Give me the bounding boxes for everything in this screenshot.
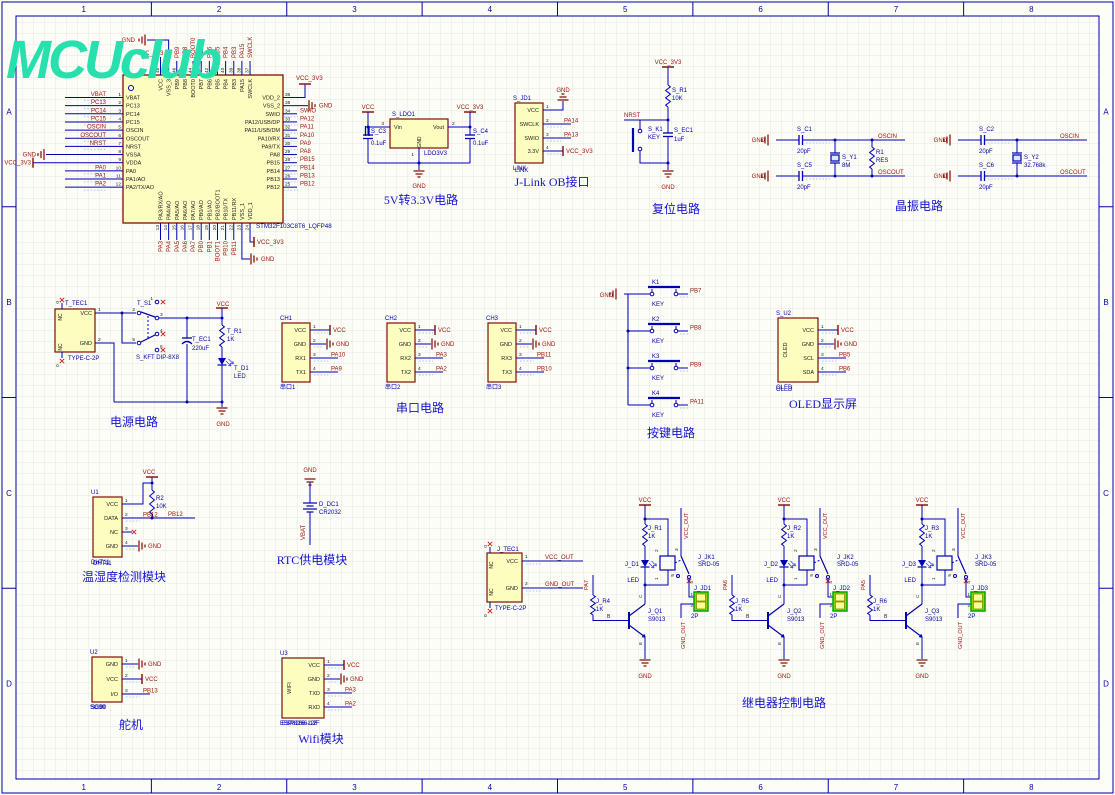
power-label[interactable]: VCC_OUT: [961, 512, 967, 539]
pin-name: RX2: [400, 356, 411, 362]
res-value[interactable]: 1K: [925, 534, 932, 540]
net-label[interactable]: OSCOUT: [80, 133, 106, 139]
relay-value[interactable]: SRD-05: [698, 562, 720, 568]
res-value[interactable]: 1K: [227, 337, 234, 343]
net-label[interactable]: SWCLK: [248, 37, 254, 58]
key-designator[interactable]: K1: [652, 280, 660, 286]
pin-number: 6: [118, 133, 121, 139]
net-label[interactable]: PA10: [331, 353, 346, 359]
pin-number: 39: [228, 67, 234, 73]
ldo-part[interactable]: LDO3V3: [424, 151, 448, 157]
contact-icon: [650, 329, 654, 333]
net-label[interactable]: PA9: [300, 141, 312, 147]
ruler-zone-number: 1: [81, 783, 86, 792]
net-label[interactable]: VBAT: [301, 524, 307, 540]
serial-ch1-part[interactable]: 串口1: [280, 383, 296, 391]
pin-name: PC13: [126, 104, 140, 110]
cap-designator[interactable]: T_EC1: [192, 337, 211, 343]
out-typec-designator[interactable]: J_TEC1: [497, 547, 519, 553]
cap-value[interactable]: 220uF: [192, 346, 209, 352]
connector-pin: [974, 602, 983, 609]
dht-designator[interactable]: U1: [91, 490, 99, 496]
connector-value[interactable]: 2P: [691, 614, 698, 620]
serial-ch1-designator[interactable]: CH1: [280, 316, 293, 322]
connector-value[interactable]: 2P: [968, 614, 975, 620]
pin-number: 24: [245, 225, 251, 231]
key-designator[interactable]: K4: [652, 391, 660, 397]
power-label[interactable]: VCC: [539, 328, 552, 334]
block-title[interactable]: OLED显示屏: [789, 397, 857, 411]
power-label[interactable]: VCC_3V3: [257, 240, 284, 246]
relay-value[interactable]: SRD-05: [975, 562, 997, 568]
pin-number: 14: [163, 225, 169, 231]
net-label[interactable]: PA3: [436, 353, 448, 359]
net-label[interactable]: BOOT1: [215, 240, 221, 261]
contact-icon: [137, 341, 141, 345]
oled-designator[interactable]: S_U2: [776, 311, 792, 317]
net-label[interactable]: PA9: [331, 367, 343, 373]
contact-icon: [674, 329, 678, 333]
power-label[interactable]: GND: [556, 88, 570, 94]
net-label[interactable]: PA2: [95, 182, 107, 188]
net-label[interactable]: PA12: [300, 116, 315, 122]
power-label[interactable]: VCC: [639, 498, 652, 504]
oled-part[interactable]: OLED: [776, 387, 793, 393]
net-label[interactable]: PA2: [436, 367, 448, 373]
res-designator[interactable]: J_R3: [925, 526, 940, 532]
net-label[interactable]: PA6: [723, 580, 729, 590]
pin-number: 20: [212, 225, 218, 231]
net-label[interactable]: PA13: [564, 133, 579, 139]
block-title[interactable]: 晶振电路: [895, 198, 943, 213]
led-value[interactable]: LED: [627, 578, 639, 584]
serial-ch3-designator[interactable]: CH3: [486, 316, 499, 322]
block-title[interactable]: 5V转3.3V电路: [384, 192, 458, 207]
contact-icon: [650, 403, 654, 407]
net-label[interactable]: PA6: [183, 240, 189, 252]
pin-number: 25: [285, 182, 291, 188]
net-label[interactable]: PA3: [159, 240, 165, 252]
pin-name: VCC: [294, 328, 306, 334]
power-label[interactable]: VCC_3V3: [4, 161, 31, 167]
net-label[interactable]: PA3: [345, 688, 357, 694]
serial-ch3-part[interactable]: 串口3: [486, 383, 502, 391]
led-designator[interactable]: J_D2: [764, 562, 779, 568]
power-label[interactable]: VCC: [333, 328, 346, 334]
block-title[interactable]: 按键电路: [647, 425, 695, 440]
power-label[interactable]: VCC: [362, 105, 375, 111]
net-label[interactable]: OSCIN: [878, 134, 897, 140]
res-designator[interactable]: J_R5: [735, 599, 750, 605]
relay-value[interactable]: SRD-05: [837, 562, 859, 568]
led-designator[interactable]: J_D3: [902, 562, 917, 568]
cap-value[interactable]: 20pF: [979, 149, 993, 155]
res-value[interactable]: 10K: [156, 504, 167, 510]
net-label[interactable]: PB12: [168, 512, 183, 518]
cap-value[interactable]: 20pF: [797, 149, 811, 155]
crystal-value[interactable]: 32.768k: [1024, 163, 1046, 169]
power-label[interactable]: GND_OUT: [958, 621, 964, 649]
power-label[interactable]: VCC_OUT: [684, 512, 690, 539]
serial-ch2-designator[interactable]: CH2: [385, 316, 398, 322]
crystal-designator[interactable]: S_Y1: [842, 155, 857, 161]
net-label[interactable]: PA15: [240, 43, 246, 58]
net-label[interactable]: PB10: [224, 240, 230, 255]
pin-name: PA8: [270, 153, 280, 159]
cap-designator[interactable]: S_C6: [979, 163, 995, 169]
net-label[interactable]: NRST: [624, 113, 641, 119]
transistor-value[interactable]: S9013: [648, 617, 666, 623]
pin-name: E: [915, 642, 920, 645]
pin-number: 2: [793, 549, 799, 552]
res-value[interactable]: RES: [876, 158, 888, 164]
pin-name: PA11/USB/DM: [244, 128, 280, 134]
ruler-zone-number: 1: [81, 5, 86, 14]
power-label[interactable]: GND: [844, 342, 858, 348]
net-label[interactable]: PC13: [91, 100, 107, 106]
transistor-designator[interactable]: J_Q3: [925, 609, 940, 615]
net-label[interactable]: PB6: [839, 367, 851, 373]
connector-pin: [974, 594, 983, 601]
block-title[interactable]: 继电器控制电路: [742, 695, 826, 710]
net-label[interactable]: PB5: [839, 353, 851, 359]
power-label[interactable]: VCC: [841, 328, 854, 334]
connector-value[interactable]: 2P: [830, 614, 837, 620]
pin-number: 1: [654, 577, 660, 580]
power-label[interactable]: VCC: [438, 328, 451, 334]
power-label[interactable]: VCC_3V3: [457, 105, 484, 111]
cap-designator[interactable]: S_C2: [979, 127, 995, 133]
net-label[interactable]: PA11: [690, 400, 704, 406]
res-designator[interactable]: S_R1: [672, 88, 688, 94]
net-label[interactable]: OSCIN: [1060, 134, 1079, 140]
power-label[interactable]: GND: [336, 342, 350, 348]
schematic-canvas[interactable]: 1122334455667788AABBCCDDSTM32F103C8T6_LQ…: [0, 0, 1115, 795]
net-label[interactable]: VBAT: [91, 92, 107, 98]
power-label[interactable]: GND: [934, 138, 948, 144]
pin-number: 23: [236, 225, 242, 231]
net-label[interactable]: PB13: [143, 689, 158, 695]
net-label[interactable]: PB15: [300, 157, 315, 163]
block-title[interactable]: 电源电路: [110, 414, 158, 429]
power-label[interactable]: VCC_OUT: [823, 512, 829, 539]
pin-number: 1: [125, 658, 128, 664]
res-designator[interactable]: T_R1: [227, 329, 242, 335]
power-label[interactable]: GND: [600, 293, 614, 299]
res-designator[interactable]: R1: [876, 150, 884, 156]
crystal-icon[interactable]: [830, 153, 840, 163]
pin-number: 2: [125, 673, 128, 679]
res-designator[interactable]: J_R1: [648, 526, 663, 532]
net-label[interactable]: PB1: [207, 240, 213, 252]
net-label[interactable]: PA11: [300, 125, 314, 131]
res-designator[interactable]: J_R4: [596, 599, 611, 605]
cap-value[interactable]: 20pF: [797, 185, 811, 191]
connector-designator[interactable]: J_JD1: [694, 586, 712, 592]
power-label[interactable]: GND: [303, 468, 317, 474]
net-label[interactable]: PA7: [191, 240, 197, 252]
pin-name: SDA: [803, 370, 815, 376]
net-label[interactable]: OSCIN: [87, 125, 106, 131]
connector-designator[interactable]: J_JD3: [971, 586, 989, 592]
power-label[interactable]: GND: [661, 185, 675, 191]
power-label[interactable]: GND: [412, 184, 426, 190]
pin-number: 4: [519, 366, 522, 372]
power-label[interactable]: VCC_3V3: [655, 60, 682, 66]
jlink-part[interactable]: LINK: [515, 168, 528, 174]
pin-name: PB4: [224, 79, 230, 89]
led-value[interactable]: LED: [904, 578, 916, 584]
pin-name: PA5/AO: [175, 200, 181, 220]
net-label[interactable]: GND_OUT: [545, 582, 575, 588]
net-label[interactable]: PA0: [95, 165, 107, 171]
crystal-icon[interactable]: [1012, 153, 1022, 163]
cap-designator[interactable]: S_C3: [371, 129, 387, 135]
power-label[interactable]: VCC: [778, 498, 791, 504]
servo-designator[interactable]: U2: [90, 650, 98, 656]
net-label[interactable]: PA5: [175, 240, 181, 252]
contact-icon: [674, 366, 678, 370]
relay-designator[interactable]: J_JK1: [698, 555, 715, 561]
mcu-designator[interactable]: STM32F103C8T6_LQFP48: [256, 223, 332, 230]
net-label[interactable]: PC15: [91, 116, 107, 122]
pin-name: SWIO: [265, 112, 280, 118]
net-label[interactable]: VCC_OUT: [545, 555, 574, 561]
key-value[interactable]: KEY: [652, 302, 664, 308]
pin-number: 4: [546, 145, 549, 151]
net-label[interactable]: PA14: [564, 119, 579, 125]
net-label[interactable]: PA7: [584, 580, 590, 590]
net-label[interactable]: PB8: [690, 326, 702, 332]
transistor-designator[interactable]: J_Q1: [648, 609, 663, 615]
ruler-zone-number: 4: [488, 5, 493, 14]
pin-number: 5: [132, 337, 135, 343]
net-label[interactable]: PB7: [690, 289, 702, 295]
net-label[interactable]: PC14: [91, 108, 107, 114]
block-title[interactable]: 舵机: [119, 717, 143, 732]
out-typec-part[interactable]: TYPE-C-2P: [495, 606, 526, 612]
power-label[interactable]: VCC: [916, 498, 929, 504]
transistor-designator[interactable]: J_Q2: [787, 609, 802, 615]
battery-part[interactable]: CR2032: [319, 510, 342, 516]
cap-designator[interactable]: S_EC1: [674, 128, 694, 134]
pin-name: VBAT: [126, 96, 141, 102]
net-label[interactable]: PB11: [232, 240, 238, 255]
pin-number: 5: [118, 125, 121, 131]
ruler-zone-number: 2: [217, 5, 222, 14]
power-label[interactable]: GND: [542, 342, 556, 348]
net-label[interactable]: PB9: [690, 363, 702, 369]
crystal-designator[interactable]: S_Y2: [1024, 155, 1039, 161]
power-label[interactable]: GND_OUT: [681, 621, 687, 649]
pin-name: TX3: [502, 370, 512, 376]
net-label[interactable]: PB3: [232, 46, 238, 58]
junction-dot: [121, 312, 124, 315]
pin-name: NC: [489, 588, 495, 596]
cap-value[interactable]: 20pF: [979, 185, 993, 191]
power-label[interactable]: GND: [319, 104, 333, 110]
pin-name: PA12/USB/DP: [245, 120, 280, 126]
jlink-designator[interactable]: S_JD1: [513, 96, 532, 102]
transistor-value[interactable]: S9013: [787, 617, 805, 623]
pin-name: PB10/TX: [224, 198, 230, 220]
cap-value[interactable]: 1uF: [674, 137, 685, 143]
block-title[interactable]: RTC供电模块: [277, 553, 348, 567]
key-designator[interactable]: S_K1: [648, 127, 663, 133]
pin-number: 2: [125, 512, 128, 518]
power-label[interactable]: GND: [638, 674, 652, 680]
net-label[interactable]: PA1: [95, 174, 107, 180]
res-designator[interactable]: J_R2: [787, 526, 802, 532]
net-label[interactable]: NRST: [90, 141, 107, 147]
net-label[interactable]: PB13: [300, 174, 315, 180]
wifi-part[interactable]: ESP8266-12F: [282, 721, 320, 727]
pin-number: 2: [327, 673, 330, 679]
serial-ch2-part[interactable]: 串口2: [385, 383, 401, 391]
pin-name: VCC: [308, 663, 320, 669]
res-designator[interactable]: R2: [156, 496, 164, 502]
ldo-designator[interactable]: S_LDO1: [392, 112, 416, 118]
pin-name: PB0/AO: [199, 199, 205, 220]
power-label[interactable]: GND: [216, 422, 230, 428]
power-label[interactable]: GND: [934, 174, 948, 180]
power-label[interactable]: GND: [441, 342, 455, 348]
key-value[interactable]: KEY: [652, 413, 664, 419]
wifi-body-text: WIFI: [287, 682, 293, 694]
dht-part[interactable]: DHT11: [93, 561, 112, 567]
transistor-value[interactable]: S9013: [925, 617, 943, 623]
switch-part[interactable]: S_KFT DIP-8X8: [136, 355, 180, 361]
block-title[interactable]: 串口电路: [396, 400, 444, 415]
junction-dot: [1016, 139, 1019, 142]
led-designator[interactable]: T_D1: [234, 366, 249, 372]
wifi-designator[interactable]: U3: [280, 651, 288, 657]
key-designator[interactable]: K2: [652, 317, 660, 323]
pin-number: 1: [327, 659, 330, 665]
pin-number: 26: [285, 174, 291, 180]
pin-name: SWCLK: [519, 122, 539, 128]
net-label[interactable]: PA8: [300, 149, 312, 155]
power-label[interactable]: VCC: [217, 302, 230, 308]
relay-designator[interactable]: J_JK3: [975, 555, 992, 561]
res-value[interactable]: 1K: [787, 534, 794, 540]
pin-name: GND: [399, 342, 411, 348]
led-value[interactable]: LED: [766, 578, 778, 584]
crystal-value[interactable]: 8M: [842, 163, 850, 169]
power-label[interactable]: GND: [148, 544, 162, 550]
led-designator[interactable]: J_D1: [625, 562, 640, 568]
cap-designator[interactable]: S_C1: [797, 127, 813, 133]
block-title[interactable]: J-Link OB接口: [514, 174, 589, 189]
pin-name: SWCLK: [248, 79, 254, 99]
key-designator[interactable]: K3: [652, 354, 660, 360]
power-label[interactable]: VCC: [347, 663, 360, 669]
power-label[interactable]: GND: [350, 677, 364, 683]
key-value[interactable]: KEY: [652, 339, 664, 345]
connector-designator[interactable]: J_JD2: [833, 586, 851, 592]
pin-number: 3: [125, 688, 128, 694]
power-label[interactable]: GND: [261, 257, 275, 263]
led-value[interactable]: LED: [234, 374, 246, 380]
net-label[interactable]: PA2: [345, 702, 357, 708]
net-label[interactable]: PB4: [224, 46, 230, 58]
pin-number: 18: [196, 225, 202, 231]
power-label[interactable]: VCC_3V3: [296, 76, 323, 82]
pin-name: SCL: [803, 356, 814, 362]
servo-part[interactable]: SG90: [91, 705, 107, 711]
power-label[interactable]: VCC: [145, 677, 158, 683]
cap-designator[interactable]: S_C4: [473, 129, 489, 135]
contact-icon: [816, 575, 819, 578]
net-label[interactable]: PB10: [537, 367, 552, 373]
res-value[interactable]: 1K: [873, 607, 880, 613]
net-label[interactable]: PA5: [861, 580, 867, 590]
battery-designator[interactable]: D_DC1: [319, 502, 339, 508]
net-label[interactable]: PB0: [199, 240, 205, 252]
res-value[interactable]: 1K: [648, 534, 655, 540]
pin-number: 1: [546, 104, 549, 110]
cap-designator[interactable]: S_C5: [797, 163, 813, 169]
net-label[interactable]: PB14: [300, 165, 315, 171]
contact-icon: [674, 292, 678, 296]
power-label[interactable]: GND: [148, 662, 162, 668]
pin-name: GND: [106, 662, 118, 668]
power-label[interactable]: GND: [752, 138, 766, 144]
junction-dot: [186, 401, 189, 404]
net-label[interactable]: PB11: [537, 353, 552, 359]
pin-name: PB11/RX: [232, 197, 238, 220]
cap-value[interactable]: 0.1uF: [371, 141, 387, 147]
block-title[interactable]: 复位电路: [652, 201, 700, 216]
net-label[interactable]: SWIO: [300, 108, 316, 114]
net-label[interactable]: PA10: [300, 133, 315, 139]
block-title[interactable]: 温湿度检测模块: [82, 569, 166, 584]
res-value[interactable]: 1K: [596, 607, 603, 613]
ruler-zone-letter: C: [1103, 489, 1109, 498]
cap-value[interactable]: 0.1uF: [473, 141, 489, 147]
typec-designator[interactable]: T_TEC1: [65, 301, 88, 307]
pin-number: 2: [418, 338, 421, 344]
power-label[interactable]: GND: [777, 674, 791, 680]
pin-name: Vout: [433, 125, 444, 131]
pin-number: 15: [171, 225, 177, 231]
res-designator[interactable]: J_R6: [873, 599, 888, 605]
power-label[interactable]: GND: [23, 153, 37, 159]
power-label[interactable]: GND_OUT: [820, 621, 826, 649]
res-value[interactable]: 1K: [735, 607, 742, 613]
power-label[interactable]: VCC_3V3: [566, 149, 593, 155]
pin-number: 1: [525, 554, 528, 560]
block-title[interactable]: Wifi模块: [298, 732, 344, 746]
power-label[interactable]: GND: [915, 674, 929, 680]
pin-name: PC14: [126, 112, 140, 118]
typec-part[interactable]: TYPE-C-2P: [68, 356, 99, 362]
junction-dot: [151, 482, 154, 485]
power-label[interactable]: VCC: [143, 470, 156, 476]
relay-designator[interactable]: J_JK2: [837, 555, 854, 561]
connector-pin: [697, 602, 706, 609]
key-value[interactable]: KEY: [652, 376, 664, 382]
junction-dot: [834, 139, 837, 142]
pin-number: 2: [525, 581, 528, 587]
net-label[interactable]: PA4: [167, 240, 173, 252]
power-label[interactable]: GND: [752, 174, 766, 180]
net-label[interactable]: PB12: [300, 182, 315, 188]
net-label[interactable]: OSCOUT: [1060, 170, 1086, 176]
key-value[interactable]: KEY: [648, 135, 660, 141]
res-value[interactable]: 10K: [672, 96, 683, 102]
net-label[interactable]: OSCOUT: [878, 170, 904, 176]
